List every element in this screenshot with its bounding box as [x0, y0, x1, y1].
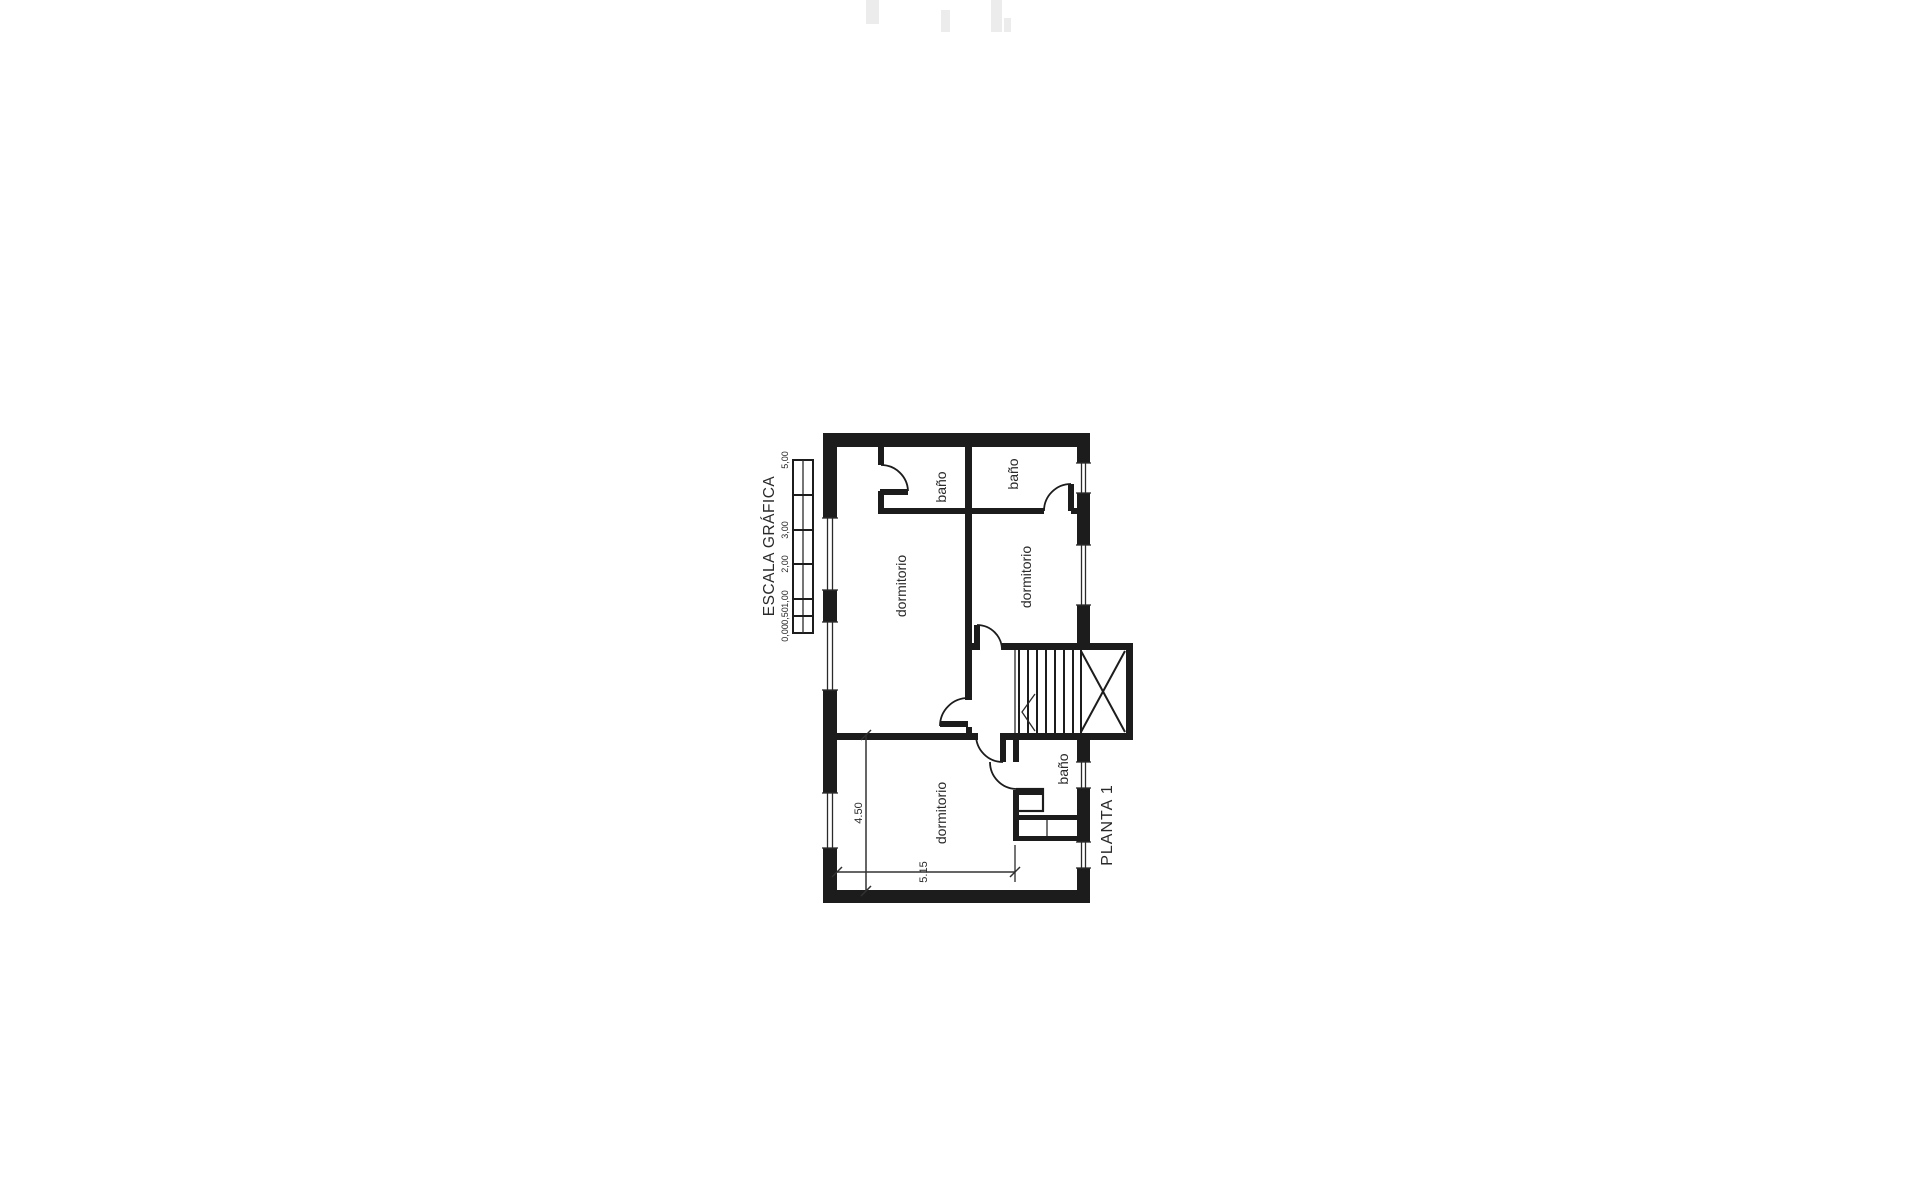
door-swing	[881, 465, 908, 491]
scale-tick-label: 0,00	[780, 624, 790, 642]
scale-tick-label: 3,00	[780, 521, 790, 539]
door-swing	[976, 735, 1003, 762]
door-swing	[1044, 484, 1071, 511]
scale-tick-label: 2,00	[780, 555, 790, 573]
dimension-label: 5.15	[918, 861, 930, 882]
scale-tick-label: 1,00	[780, 590, 790, 608]
room-label-bedroom-1: dormitorio	[893, 555, 909, 617]
scale-tick-label: 0,50	[780, 607, 790, 625]
dimension-label: 4.50	[853, 802, 865, 823]
room-labels: baño baño dormitorio dormitorio baño dor…	[893, 458, 1071, 844]
door-leaf	[1068, 484, 1074, 511]
door-leaf	[940, 721, 968, 727]
floor-plan-sheet: ESCALA GRÁFICA 0,00 0,50 1,00 2,00 3,00 …	[0, 0, 1920, 1200]
door-leaf	[880, 489, 908, 495]
window	[1076, 545, 1091, 605]
dimension-lines: 4.50 5.15	[832, 730, 1020, 896]
exterior-walls	[823, 433, 1133, 903]
door-leaf	[1000, 733, 1006, 762]
scan-noise	[866, 0, 1011, 32]
window	[822, 622, 838, 690]
room-label-bedroom-2: dormitorio	[1018, 546, 1034, 608]
scale-bar-title: ESCALA GRÁFICA	[761, 476, 778, 617]
window	[1076, 842, 1091, 868]
window	[1076, 463, 1091, 493]
window	[1076, 762, 1091, 788]
room-label-bath-3: baño	[1055, 753, 1071, 784]
doors	[880, 465, 1074, 795]
window	[822, 518, 838, 590]
scale-tick-label: 5,00	[780, 451, 790, 469]
room-label-bath-1: baño	[933, 471, 949, 502]
door-leaf	[974, 625, 980, 650]
room-label-bath-2: baño	[1005, 458, 1021, 489]
door-swing	[977, 625, 1002, 650]
graphic-scale-bar: ESCALA GRÁFICA 0,00 0,50 1,00 2,00 3,00 …	[761, 451, 813, 642]
staircase	[1015, 650, 1125, 733]
door-swing	[990, 762, 1016, 789]
plan-title: PLANTA 1	[1099, 784, 1116, 866]
window	[822, 793, 838, 848]
room-label-bedroom-3: dormitorio	[933, 782, 949, 844]
